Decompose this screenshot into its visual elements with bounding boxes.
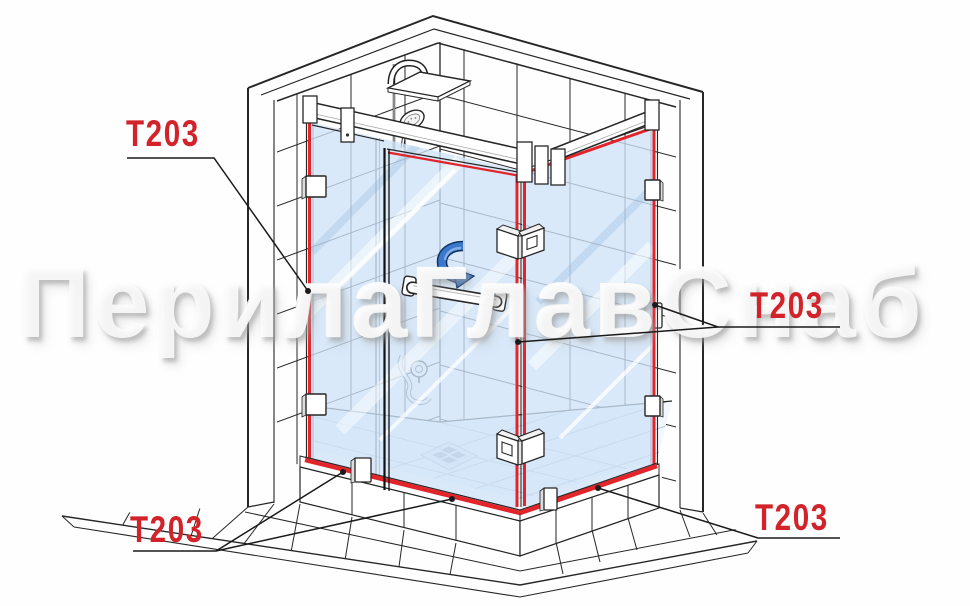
leader-top-left bbox=[127, 158, 308, 291]
part-label-top-left: T203 bbox=[126, 116, 200, 152]
shower-enclosure-diagram: ПерилаГлавСнаб T203 T203 T203 T203 bbox=[0, 0, 970, 606]
leader-dots bbox=[305, 288, 658, 502]
leader-middle-right-2 bbox=[518, 327, 718, 342]
part-label-bottom-right: T203 bbox=[755, 500, 829, 536]
part-label-middle-right: T203 bbox=[750, 288, 824, 324]
part-label-bottom-left: T203 bbox=[130, 512, 204, 548]
leader-bottom-left-2 bbox=[216, 499, 452, 551]
